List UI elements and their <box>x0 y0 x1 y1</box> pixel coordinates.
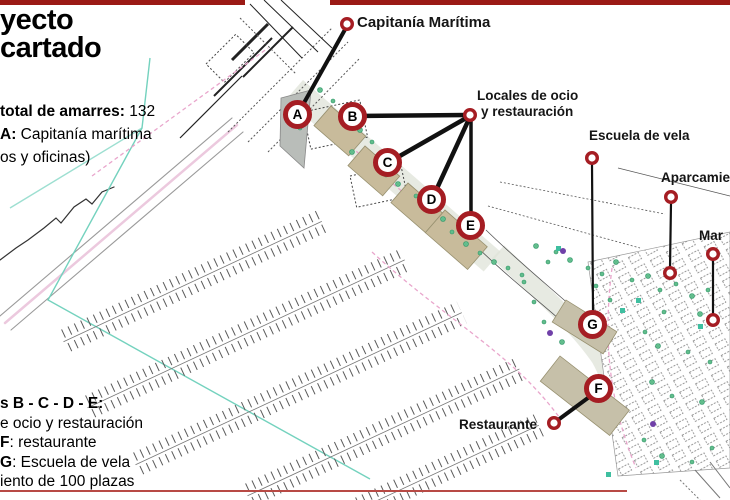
legend-top: total de amarres: 132 A: Capitanía marít… <box>0 100 155 169</box>
marker-f: F <box>584 374 613 403</box>
capitania-line: A: Capitanía marítima <box>0 123 155 146</box>
headline-line1: yecto <box>0 6 101 34</box>
legend-bottom: s B - C - D - E: e ocio y restauración F… <box>0 394 143 492</box>
g-text: : Escuela de vela <box>12 454 130 471</box>
bcde-line: s B - C - D - E: <box>0 394 143 414</box>
marker-e-letter: E <box>466 218 475 233</box>
marker-g-letter: G <box>587 317 598 332</box>
locales-label-line2: y restauración <box>481 104 578 120</box>
marker-g: G <box>578 310 607 339</box>
headline-line2: cartado <box>0 34 101 62</box>
g-key: G <box>0 454 12 471</box>
marker-c: C <box>373 148 402 177</box>
marker-f-letter: F <box>594 381 602 396</box>
amarres-value: 132 <box>125 103 155 120</box>
locales-label: Locales de ocio y restauración <box>477 88 578 120</box>
marker-d-letter: D <box>427 192 437 207</box>
g-line: G: Escuela de vela <box>0 453 143 473</box>
infographic-stage: yecto cartado total de amarres: 132 A: C… <box>0 0 730 500</box>
amarres-line: total de amarres: 132 <box>0 100 155 123</box>
f-line: F: restaurante <box>0 433 143 453</box>
restaurante-label: Restaurante <box>459 417 537 432</box>
capitania-cont-line: os y oficinas) <box>0 146 155 169</box>
marker-a-letter: A <box>293 107 303 122</box>
f-text: : restaurante <box>9 434 96 451</box>
marker-e: E <box>456 211 485 240</box>
marker-a: A <box>283 100 312 129</box>
marker-b: B <box>338 102 367 131</box>
capitania-key: A: <box>0 126 16 143</box>
marker-c-letter: C <box>383 155 393 170</box>
top-red-bar-right <box>330 0 730 5</box>
headline: yecto cartado <box>0 6 101 62</box>
amarres-label: total de amarres: <box>0 103 125 120</box>
escuela-label: Escuela de vela <box>589 128 690 143</box>
bcde-key: s B - C - D - E: <box>0 395 103 412</box>
marker-b-letter: B <box>348 109 358 124</box>
plazas-line: iento de 100 plazas <box>0 472 143 492</box>
ocio-line: e ocio y restauración <box>0 414 143 434</box>
marker-d: D <box>417 185 446 214</box>
capitania-label: Capitanía Marítima <box>357 14 490 31</box>
mar-label: Mar <box>699 228 723 243</box>
locales-label-line1: Locales de ocio <box>477 88 578 104</box>
aparcamiento-label: Aparcamiento <box>661 170 730 185</box>
capitania-text: Capitanía marítima <box>16 126 151 143</box>
